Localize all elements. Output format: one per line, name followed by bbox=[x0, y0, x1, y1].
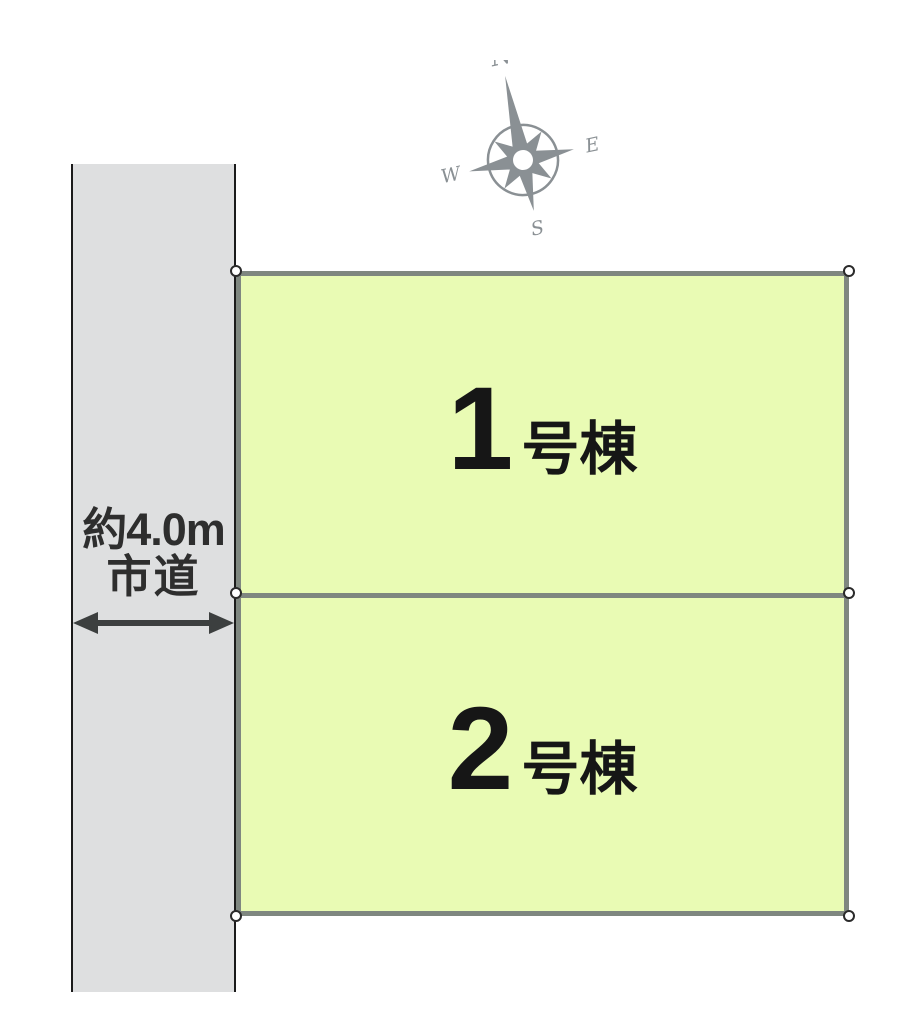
compass-rose: N E S W bbox=[433, 60, 613, 260]
vertex-marker bbox=[843, 587, 855, 599]
road-annotation: 約4.0m 市道 bbox=[71, 506, 236, 601]
double-arrow-icon bbox=[71, 606, 236, 640]
plot-1-number: 1 bbox=[448, 370, 512, 488]
road-width-label: 約4.0m bbox=[71, 506, 236, 553]
compass-north-label: N bbox=[487, 60, 515, 72]
vertex-marker bbox=[230, 910, 242, 922]
plot-1-suffix: 号棟 bbox=[521, 421, 637, 479]
vertex-marker bbox=[843, 910, 855, 922]
compass-west-label: W bbox=[439, 162, 464, 188]
plot-2-suffix: 号棟 bbox=[521, 741, 637, 799]
vertex-marker bbox=[230, 265, 242, 277]
road-name-label: 市道 bbox=[71, 553, 236, 600]
site-plan-canvas: 1 号棟 2 号棟 約4.0m 市道 bbox=[0, 0, 915, 1024]
plot-2-label: 2 号棟 bbox=[448, 690, 638, 808]
compass-south-label: S bbox=[529, 216, 546, 240]
plot-2: 2 号棟 bbox=[236, 593, 849, 916]
vertex-marker bbox=[843, 265, 855, 277]
plot-1: 1 号棟 bbox=[236, 271, 849, 593]
road-width-arrow bbox=[71, 606, 236, 640]
plot-1-label: 1 号棟 bbox=[448, 370, 638, 488]
compass-icon: N E S W bbox=[433, 60, 613, 260]
plot-2-number: 2 bbox=[448, 690, 512, 808]
compass-east-label: E bbox=[582, 133, 601, 158]
